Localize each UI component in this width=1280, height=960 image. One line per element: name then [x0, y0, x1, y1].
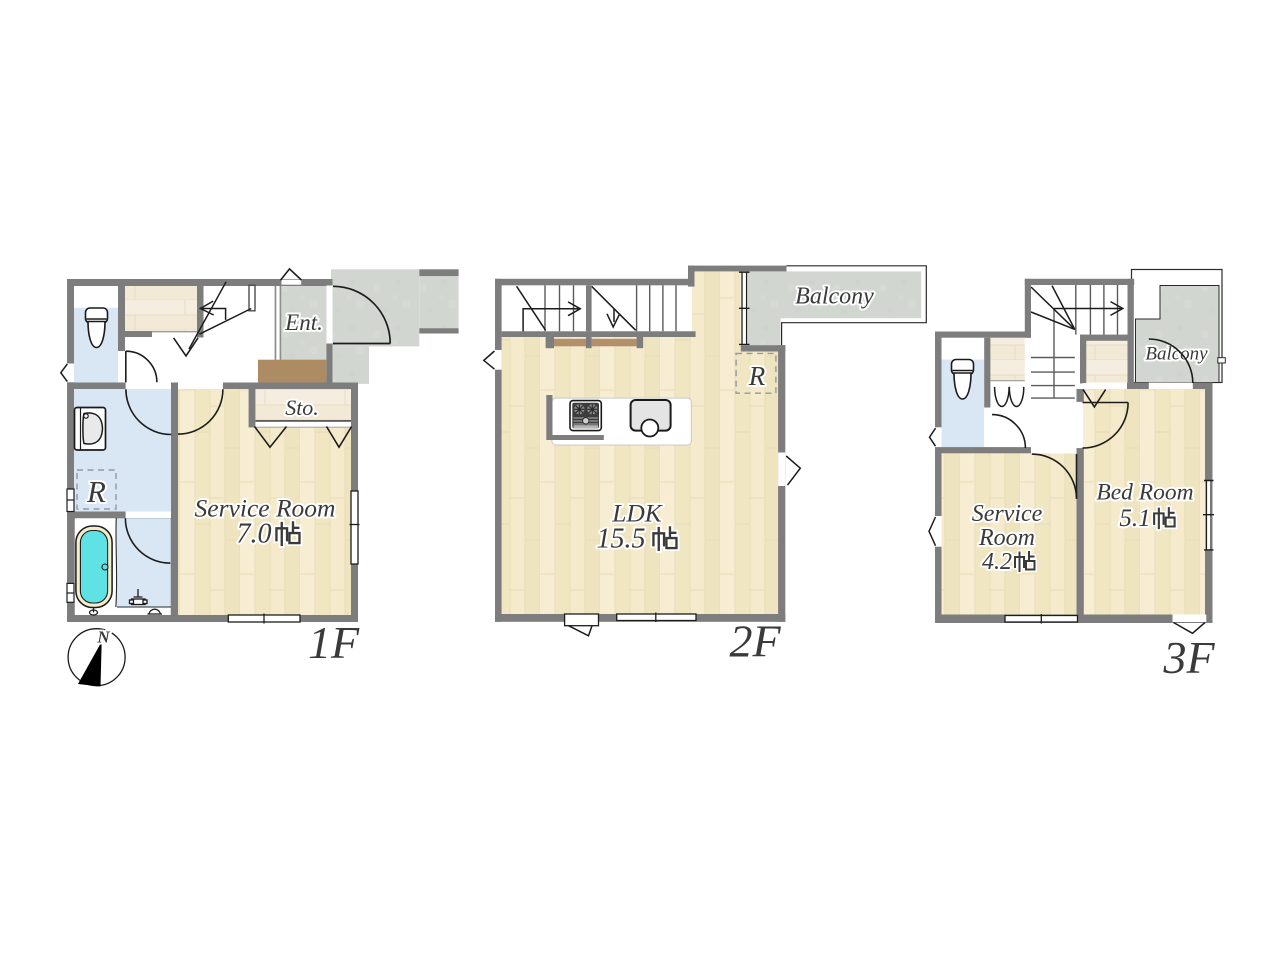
- svg-text:7.0: 7.0: [237, 519, 272, 550]
- svg-text:5.1: 5.1: [1119, 505, 1150, 532]
- svg-text:Service: Service: [972, 501, 1043, 527]
- svg-text:Balcony: Balcony: [795, 284, 874, 310]
- svg-text:R: R: [86, 474, 106, 509]
- svg-text:N: N: [96, 628, 110, 647]
- svg-text:Sto.: Sto.: [285, 395, 319, 420]
- svg-text:4.2: 4.2: [982, 549, 1012, 575]
- svg-text:Balcony: Balcony: [1145, 344, 1208, 365]
- svg-text:Room: Room: [978, 525, 1035, 551]
- svg-text:Bed Room: Bed Room: [1096, 480, 1193, 506]
- svg-text:R: R: [748, 361, 766, 391]
- svg-text:2F: 2F: [729, 616, 781, 667]
- svg-text:15.5: 15.5: [597, 524, 646, 555]
- svg-text:Ent.: Ent.: [284, 310, 323, 335]
- svg-text:1F: 1F: [308, 617, 360, 668]
- svg-text:3F: 3F: [1162, 632, 1215, 683]
